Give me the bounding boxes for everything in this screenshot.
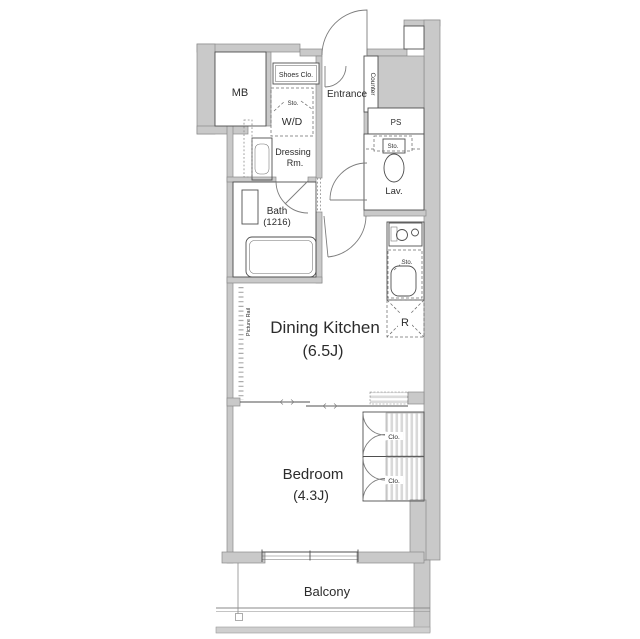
balcony-edge bbox=[216, 627, 430, 633]
label-lav-storage: Sto. bbox=[388, 144, 399, 150]
label-dressing-2: Rm. bbox=[287, 158, 304, 168]
label-dining-kitchen-size: (6.5J) bbox=[303, 343, 344, 360]
label-dining-kitchen: Dining Kitchen bbox=[270, 318, 380, 337]
label-mb: MB bbox=[232, 87, 249, 99]
label-bath-size: (1216) bbox=[263, 217, 290, 228]
label-lavatory: Lav. bbox=[385, 186, 402, 197]
label-kitchen-storage: Sto. bbox=[402, 260, 413, 266]
label-shoes-closet: Shoes Clo. bbox=[279, 72, 313, 79]
floor-plan: MB Shoes Clo. Entrance Counter Sto. W/D … bbox=[0, 0, 640, 639]
label-bedroom: Bedroom bbox=[283, 466, 344, 483]
overhead-shelf bbox=[370, 392, 408, 404]
label-counter: Counter bbox=[369, 72, 376, 96]
label-pipe-space: PS bbox=[391, 118, 402, 127]
label-bedroom-size: (4.3J) bbox=[293, 487, 329, 503]
railing-post bbox=[236, 614, 243, 621]
floor-plan-page: MB Shoes Clo. Entrance Counter Sto. W/D … bbox=[0, 0, 640, 639]
label-picture-rail: Picture Rail bbox=[246, 308, 252, 336]
label-balcony: Balcony bbox=[304, 584, 351, 599]
label-washer-dryer: W/D bbox=[282, 116, 303, 128]
label-wd-storage: Sto. bbox=[288, 101, 299, 107]
vent-shaft bbox=[404, 26, 424, 49]
label-dressing-1: Dressing bbox=[275, 147, 311, 157]
label-bath: Bath bbox=[267, 206, 288, 217]
label-closet-upper: Clo. bbox=[388, 434, 400, 441]
label-entrance: Entrance bbox=[327, 89, 367, 100]
label-closet-lower: Clo. bbox=[388, 478, 400, 485]
label-refrigerator: R bbox=[401, 317, 409, 329]
